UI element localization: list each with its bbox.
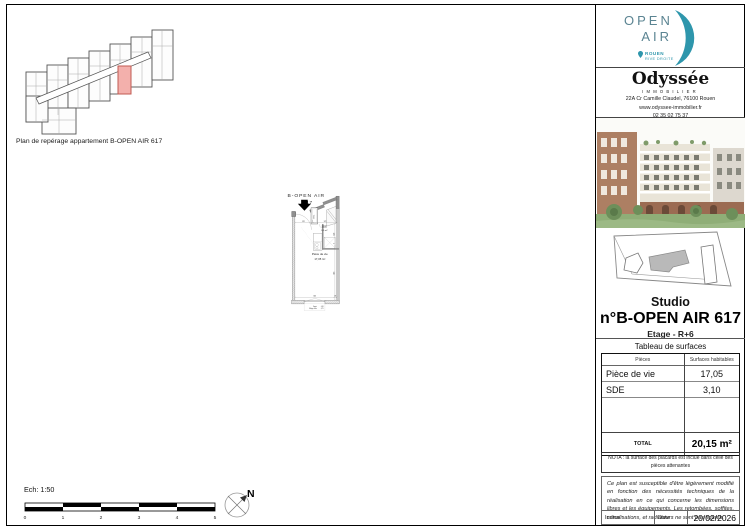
dimension-label: 18 — [334, 296, 336, 298]
agency-name: Odyssée — [596, 71, 745, 88]
main-floor-plan: ETEL Appui 0,36 — [285, 98, 450, 446]
table-spacer — [685, 398, 739, 432]
dimension-label: 301 — [313, 296, 316, 298]
window-allege-value: 0,75 — [321, 308, 324, 310]
site-plan — [596, 230, 745, 292]
openair-logo: OPEN AIR ROUEN RIVE DROITE — [596, 4, 745, 68]
date-value: 20/02/2026 — [687, 511, 739, 524]
dimension-label: 456 — [333, 272, 335, 275]
unit-identity: Studio n°B-OPEN AIR 617 Etage - R+6 — [596, 292, 745, 338]
scale-bar: 0 1 2 3 4 5 — [24, 503, 217, 521]
scale-tick: 0 — [24, 515, 27, 521]
unit-name: n°B-OPEN AIR 617 — [596, 310, 745, 328]
scale-tick: 2 — [100, 515, 103, 521]
table-spacer — [602, 398, 684, 432]
total-label: TOTAL — [634, 441, 652, 447]
nota-text: NOTA : la surface des placards est inclu… — [601, 452, 740, 473]
key-plan — [12, 8, 197, 136]
key-plan-highlighted-unit — [118, 66, 131, 94]
living-room-label: Pièce de vie — [312, 252, 328, 256]
key-plan-units — [26, 30, 173, 134]
scale-tick: 3 — [138, 515, 141, 521]
agency-block: Odyssée IMMOBILIER 22A Cr Camille Claude… — [596, 68, 745, 118]
agency-website[interactable]: www.odyssee-immobilier.fr — [596, 105, 745, 112]
key-plan-caption: Plan de repérage appartement B-OPEN AIR … — [16, 138, 162, 145]
plan-sheet: Plan de repérage appartement B-OPEN AIR … — [0, 0, 750, 530]
scale-tick: 4 — [176, 515, 179, 521]
unit-type: Studio — [596, 295, 745, 309]
table-row-piece: Pièce de vie — [602, 366, 684, 382]
openair-word1: OPEN — [624, 13, 672, 29]
plan-title: B-OPEN AIR — [288, 193, 325, 199]
scale-and-north: 0 1 2 3 4 5 N — [15, 478, 265, 526]
building-rendering-image — [596, 118, 745, 228]
dimension-label: 172 — [324, 221, 327, 223]
bay-window — [326, 206, 336, 226]
table-row-surface: 17,05 — [685, 366, 739, 382]
table-row-surface: 3,10 — [685, 382, 739, 398]
column-header-pieces: Pièces — [602, 354, 684, 366]
crescent-moon-icon — [670, 9, 702, 67]
north-arrow-icon: N — [225, 488, 255, 517]
kitchenette — [313, 234, 322, 251]
surface-table: Pièces Pièce de vie SDE TOTAL Surfaces h… — [601, 353, 740, 456]
agency-subtitle: IMMOBILIER — [596, 89, 745, 94]
indice-label: Indice : — [602, 511, 654, 524]
agency-address: 22A Cr Camille Claudel, 76100 Rouen — [596, 96, 745, 103]
surface-table-section: Tableau de surfaces Pièces Pièce de vie … — [596, 338, 745, 450]
north-label: N — [247, 488, 255, 500]
nota-box: NOTA : la surface des placards est inclu… — [596, 452, 745, 474]
shower — [324, 237, 335, 248]
surface-table-title: Tableau de surfaces — [596, 342, 745, 351]
openair-wordmark: OPEN AIR — [624, 13, 672, 46]
openair-location: ROUEN RIVE DROITE — [638, 51, 674, 61]
legal-box: Ce plan est susceptible d'être légèremen… — [596, 476, 745, 510]
bottom-window: Appui 0,36 Allège vitrée 0,75 — [304, 298, 325, 310]
window-appui-value: 0,36 — [321, 306, 324, 308]
openair-word2: AIR — [624, 29, 672, 45]
footer-row: Indice : Date : 20/02/2026 — [596, 510, 745, 526]
scale-tick: 1 — [62, 515, 65, 521]
living-area-label: 17,05 m² — [314, 257, 325, 261]
sidebar: OPEN AIR ROUEN RIVE DROITE Odyssée IMMOB… — [595, 4, 745, 525]
date-label: Date : — [654, 511, 687, 524]
dimension-label: 158 — [333, 233, 335, 236]
total-value: 20,15 m² — [692, 439, 732, 450]
scale-tick: 5 — [214, 515, 217, 521]
dimension-label: 122 — [302, 221, 305, 223]
map-pin-icon — [638, 51, 643, 58]
column-header-surfaces: Surfaces habitables — [685, 354, 739, 366]
window-appui-label: Appui — [313, 305, 317, 308]
table-row-piece: SDE — [602, 382, 684, 398]
